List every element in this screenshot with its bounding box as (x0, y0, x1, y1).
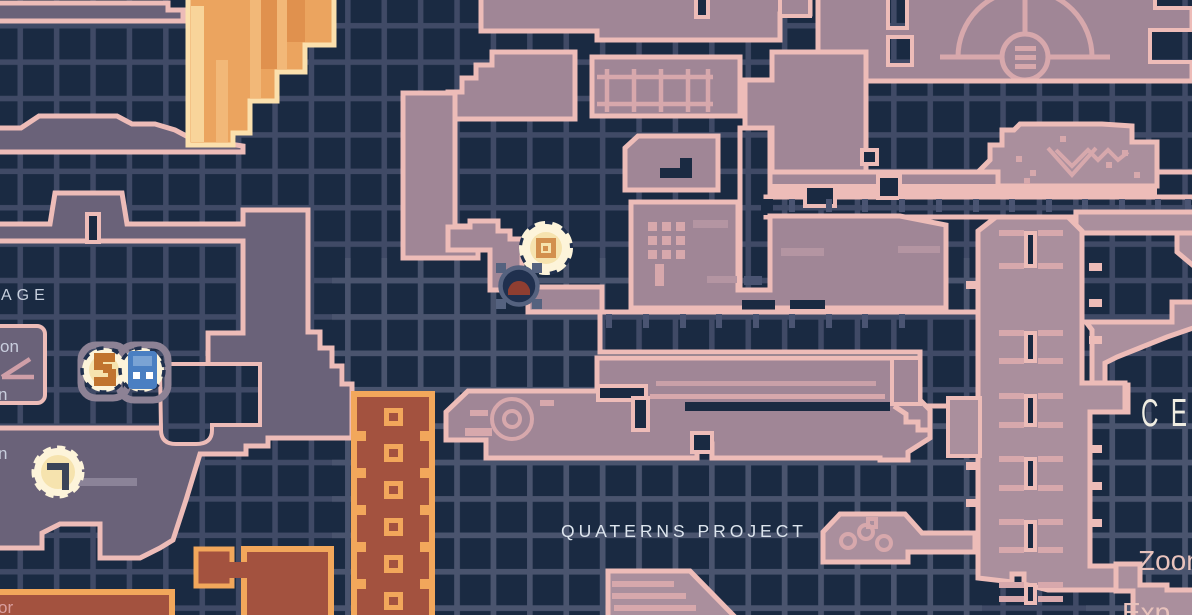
svg-text:n: n (0, 444, 7, 463)
svg-text:or: or (0, 598, 13, 615)
svg-text:Zoom: Zoom (1138, 545, 1192, 576)
svg-text:n: n (0, 385, 7, 404)
svg-text:CEN: CEN (1141, 391, 1192, 434)
svg-text:QUATERNS PROJECT: QUATERNS PROJECT (561, 521, 803, 541)
svg-text:Exp: Exp (1122, 597, 1170, 615)
svg-text:AGE: AGE (1, 287, 50, 304)
svg-text:on: on (0, 337, 19, 356)
